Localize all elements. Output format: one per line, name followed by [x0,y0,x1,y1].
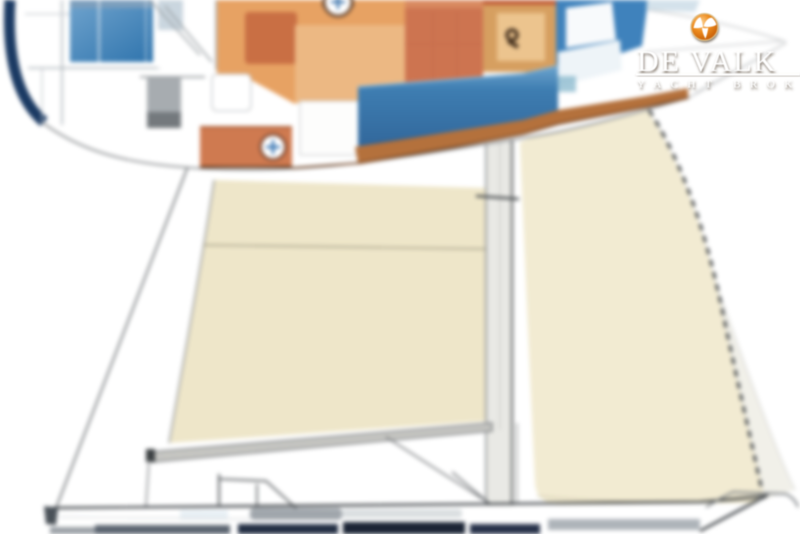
svg-text:DE VALK: DE VALK [637,45,777,78]
svg-text:YACHT BROKERS: YACHT BROKERS [637,79,800,91]
